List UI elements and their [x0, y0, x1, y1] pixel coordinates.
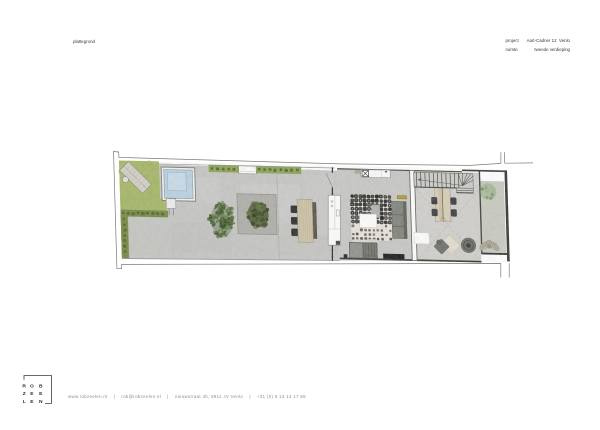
svg-text:project: project	[506, 38, 520, 43]
svg-text:tweede verdieping: tweede verdieping	[534, 47, 570, 52]
svg-text:L: L	[23, 399, 26, 405]
svg-text:N: N	[39, 399, 43, 405]
svg-text:O: O	[30, 383, 34, 389]
svg-text:www.robzeelen.nl | rob@r: www.robzeelen.nl | rob@robzeelen.nl | ni…	[68, 394, 306, 399]
svg-text:plattegrond: plattegrond	[73, 39, 96, 44]
svg-text:Aart-Cadner 12 Venlo: Aart-Cadner 12 Venlo	[527, 38, 571, 43]
svg-text:ruimte: ruimte	[506, 47, 519, 52]
svg-text:Z: Z	[23, 391, 26, 397]
svg-text:B: B	[39, 383, 43, 389]
svg-text:R: R	[22, 383, 26, 389]
